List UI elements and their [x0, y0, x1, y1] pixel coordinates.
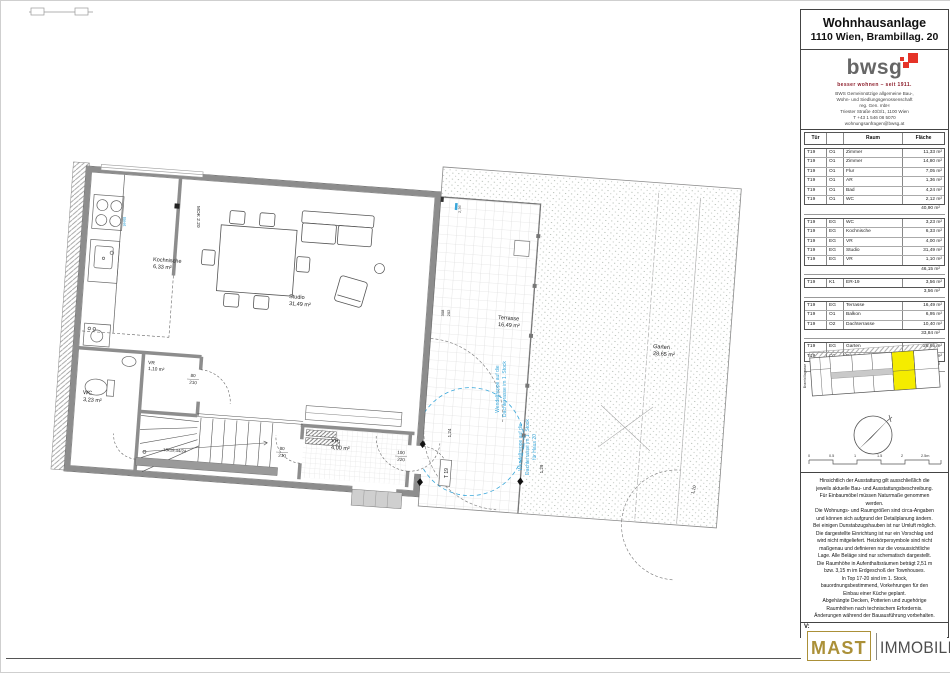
- label-vr-small-area: 1,10 m²: [148, 366, 165, 373]
- scale-label: 1.5: [877, 454, 882, 458]
- label-garten: Garten: [653, 344, 670, 351]
- disclaimer-line: bauordnungsbestimmend, Vorkehrungen für …: [801, 583, 948, 591]
- disclaimer-line: bzw. 3,15 m im Erdgeschoß der Townhouses…: [801, 568, 948, 576]
- immobilien-wordmark: IMMOBILIEN: [880, 639, 950, 658]
- disclaimer-line: In Top 17-20 sind im 1. Stock,: [801, 576, 948, 584]
- svg-text:220: 220: [397, 457, 405, 463]
- bwsg-logo: bwsg: [847, 56, 903, 80]
- blue-note-2: Wendeltreppe auf die: [518, 423, 524, 471]
- project-title: Wohnhausanlage: [801, 16, 948, 30]
- table-row: T19EGVR1,10 m²: [805, 255, 944, 264]
- room-table-groups: T19O1Zimmer11,33 m²T19O1Zimmer14,80 m²T1…: [804, 148, 945, 372]
- address-line: wohnungsanfragen@bwsg.at: [801, 121, 948, 127]
- table-row: T19EGKochnische6,33 m²: [805, 227, 944, 236]
- scale-label: 0.5: [829, 454, 834, 458]
- disclaimer-line: Die Wohnungs- und Raumgrößen sind circa-…: [801, 508, 948, 516]
- dim-door-80: 80: [190, 373, 196, 378]
- street-label: Brambillagasse: [803, 364, 807, 389]
- disclaimer-line: Lage. Alle Beläge sind nur schematisch d…: [801, 553, 948, 561]
- plan-sheet: Kochnische 6,33 m² Studio 31,49 m² WC 3,…: [0, 0, 950, 673]
- bwsg-tagline: besser wohnen – seit 1911.: [801, 82, 948, 88]
- door-tag: T 19: [444, 468, 450, 478]
- side-table: [374, 263, 385, 274]
- disclaimer-line: Einbau einer Küche geplant.: [801, 591, 948, 599]
- bwsg-wordmark: bwsg: [847, 56, 903, 79]
- dim-door-100: 100: [397, 450, 405, 456]
- scale-label: 2.5m: [921, 454, 929, 458]
- compass-scale-section: 00.511.522.5m: [801, 408, 948, 472]
- table-row: T19O1Bad4,24 m²: [805, 186, 944, 195]
- entry-step: [351, 489, 402, 509]
- svg-text:Dachterrasse im 1. Stock: Dachterrasse im 1. Stock: [502, 361, 508, 417]
- dim-mok: MOK 2.20: [195, 206, 201, 228]
- disclaimer-line: Bei einigen Dunstabzugshauben ist nur Um…: [801, 523, 948, 531]
- room-table: Tür Raum Fläche T19O1Zimmer11,33 m²T19O1…: [801, 130, 948, 342]
- table-subtotal: 46,15 m²: [804, 266, 945, 275]
- bwsg-squares-icon: [902, 53, 918, 75]
- planter: [514, 240, 530, 256]
- table-row: T19EGTerrasse16,49 m²: [805, 302, 944, 310]
- developer-block: bwsg besser wohnen – seit 1911. BWS Geme…: [801, 50, 948, 130]
- broker-logo: MAST IMMOBILIEN: [801, 629, 947, 665]
- table-row: T19EGVR4,00 m²: [805, 237, 944, 246]
- key-plan-building: [809, 343, 940, 396]
- dim-236: 2,36: [457, 204, 462, 213]
- table-row: T19O1WC2,12 m²: [805, 195, 944, 204]
- label-vr-small: VR: [148, 360, 156, 366]
- disclaimer-line: jeweils aktuelle Bau- und Ausstattungsbe…: [801, 486, 948, 494]
- title-block: Wohnhausanlage 1110 Wien, Brambillag. 20: [801, 10, 948, 50]
- table-row: T19K1ER-193,56 m²: [805, 279, 944, 287]
- svg-text:Dachterrasse im 1. Stock: Dachterrasse im 1. Stock: [525, 419, 531, 475]
- disclaimer-line: werden.: [801, 501, 948, 509]
- dim-308: 308: [440, 309, 445, 316]
- scale-label: 0: [808, 454, 810, 458]
- table-subtotal: 3,56 m²: [804, 288, 945, 297]
- table-row: T19O1Zimmer14,80 m²: [805, 157, 944, 166]
- svg-text:210: 210: [189, 380, 197, 386]
- dim-124: 1,24: [447, 428, 452, 437]
- title-block-sidebar: Wohnhausanlage 1110 Wien, Brambillag. 20…: [800, 9, 949, 638]
- project-address: 1110 Wien, Brambillag. 20: [801, 31, 948, 43]
- scale-label: 2: [901, 454, 903, 458]
- disclaimer-line: und können sich aufgrund der Detailplanu…: [801, 516, 948, 524]
- table-row: T19O2Dachterrasse10,40 m²: [805, 320, 944, 329]
- table-row: T19O1Zimmer11,33 m²: [805, 149, 944, 157]
- col-tuer: Tür: [805, 133, 827, 144]
- table-row: T19O1Balkon6,95 m²: [805, 310, 944, 319]
- disclaimer-line: maßgenau und definieren nur die voraussi…: [801, 546, 948, 554]
- disclaimer-line: Raumhöhen nach technischem Erfordernis.: [801, 606, 948, 614]
- table-row: T19EGWC3,23 m²: [805, 219, 944, 227]
- scale-label: 1: [854, 454, 856, 458]
- bwsg-address: BWS Gemeinnützige allgemeine Bau-,Wohn- …: [801, 91, 948, 126]
- dim-129: 1,29: [539, 464, 544, 473]
- label-wc: WC: [83, 390, 93, 397]
- table-group: T19K1ER-193,56 m²: [804, 278, 945, 288]
- svg-text:210: 210: [278, 453, 286, 459]
- disclaimer-line: Für Einbaumöbel müssen Naturmaße genomme…: [801, 493, 948, 501]
- table-group: T19EGTerrasse16,49 m²T19O1Balkon6,95 m²T…: [804, 301, 945, 330]
- col-raum: Raum: [844, 133, 902, 144]
- logo-divider: [876, 633, 877, 660]
- table-row: T19EGStudio31,49 m²: [805, 246, 944, 255]
- dim-door-80b: 80: [279, 446, 285, 451]
- table-subtotal: 40,90 m²: [804, 205, 945, 214]
- svg-text:202: 202: [446, 309, 451, 316]
- disclaimer-line: Die Raumhöhe in Aufenthaltsräumen beträg…: [801, 561, 948, 569]
- disclaimer-line: wird nicht mitgeliefert. Heizkörpersymbo…: [801, 538, 948, 546]
- blue-note-1: Wendeltreppe auf die: [495, 365, 501, 413]
- table-header: Tür Raum Fläche: [804, 132, 945, 145]
- mast-wordmark: MAST: [811, 638, 867, 659]
- table-row: T19O1AR1,36 m²: [805, 176, 944, 185]
- disclaimer-text: Hinsichtlich der Ausstattung gilt aussch…: [801, 472, 948, 622]
- sheet-fold-marks: [29, 8, 93, 15]
- disclaimer-line: Hinsichtlich der Ausstattung gilt aussch…: [801, 478, 948, 486]
- table-group: T19EGWC3,23 m²T19EGKochnische6,33 m²T19E…: [804, 218, 945, 266]
- disclaimer-line: Abgehängte Decken, Potterien und zugehör…: [801, 598, 948, 606]
- svg-text:für Haus 20: für Haus 20: [532, 434, 538, 460]
- north-arrow-icon: [854, 415, 892, 454]
- site-key-plan: Brambillagasse: [801, 342, 948, 408]
- table-group: T19O1Zimmer11,33 m²T19O1Zimmer14,80 m²T1…: [804, 148, 945, 205]
- scale-bar: [809, 460, 941, 464]
- table-row: T19O1Flur7,05 m²: [805, 167, 944, 176]
- col-flaeche: Fläche: [902, 133, 944, 144]
- label-studio: Studio: [289, 294, 305, 301]
- table-subtotal: 33,84 m²: [804, 330, 945, 339]
- label-vr: VR: [331, 438, 339, 445]
- blue-note-beet: Beet: [122, 217, 127, 227]
- disclaimer-line: Die dargestellte Einrichtung ist nur ein…: [801, 531, 948, 539]
- disclaimer-line: Änderungen während der Bauausführung vor…: [801, 613, 948, 621]
